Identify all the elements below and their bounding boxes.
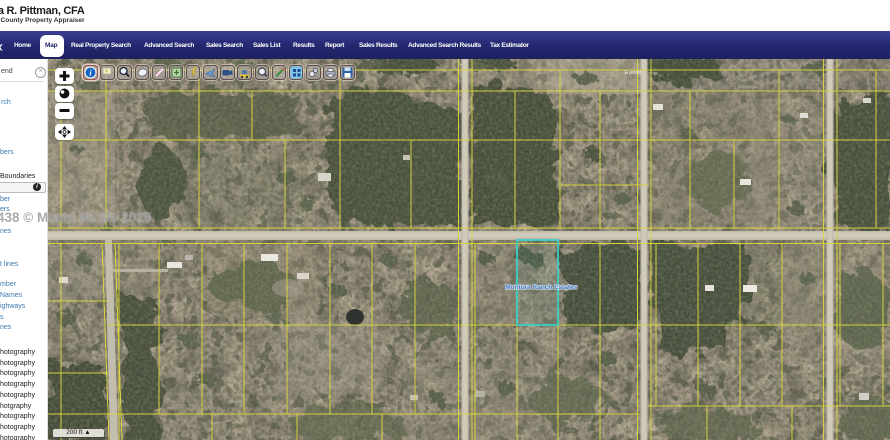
svg-text:Everett: Everett <box>625 70 641 76</box>
svg-text:Montura Ranch Estates: Montura Ranch Estates <box>505 284 578 291</box>
